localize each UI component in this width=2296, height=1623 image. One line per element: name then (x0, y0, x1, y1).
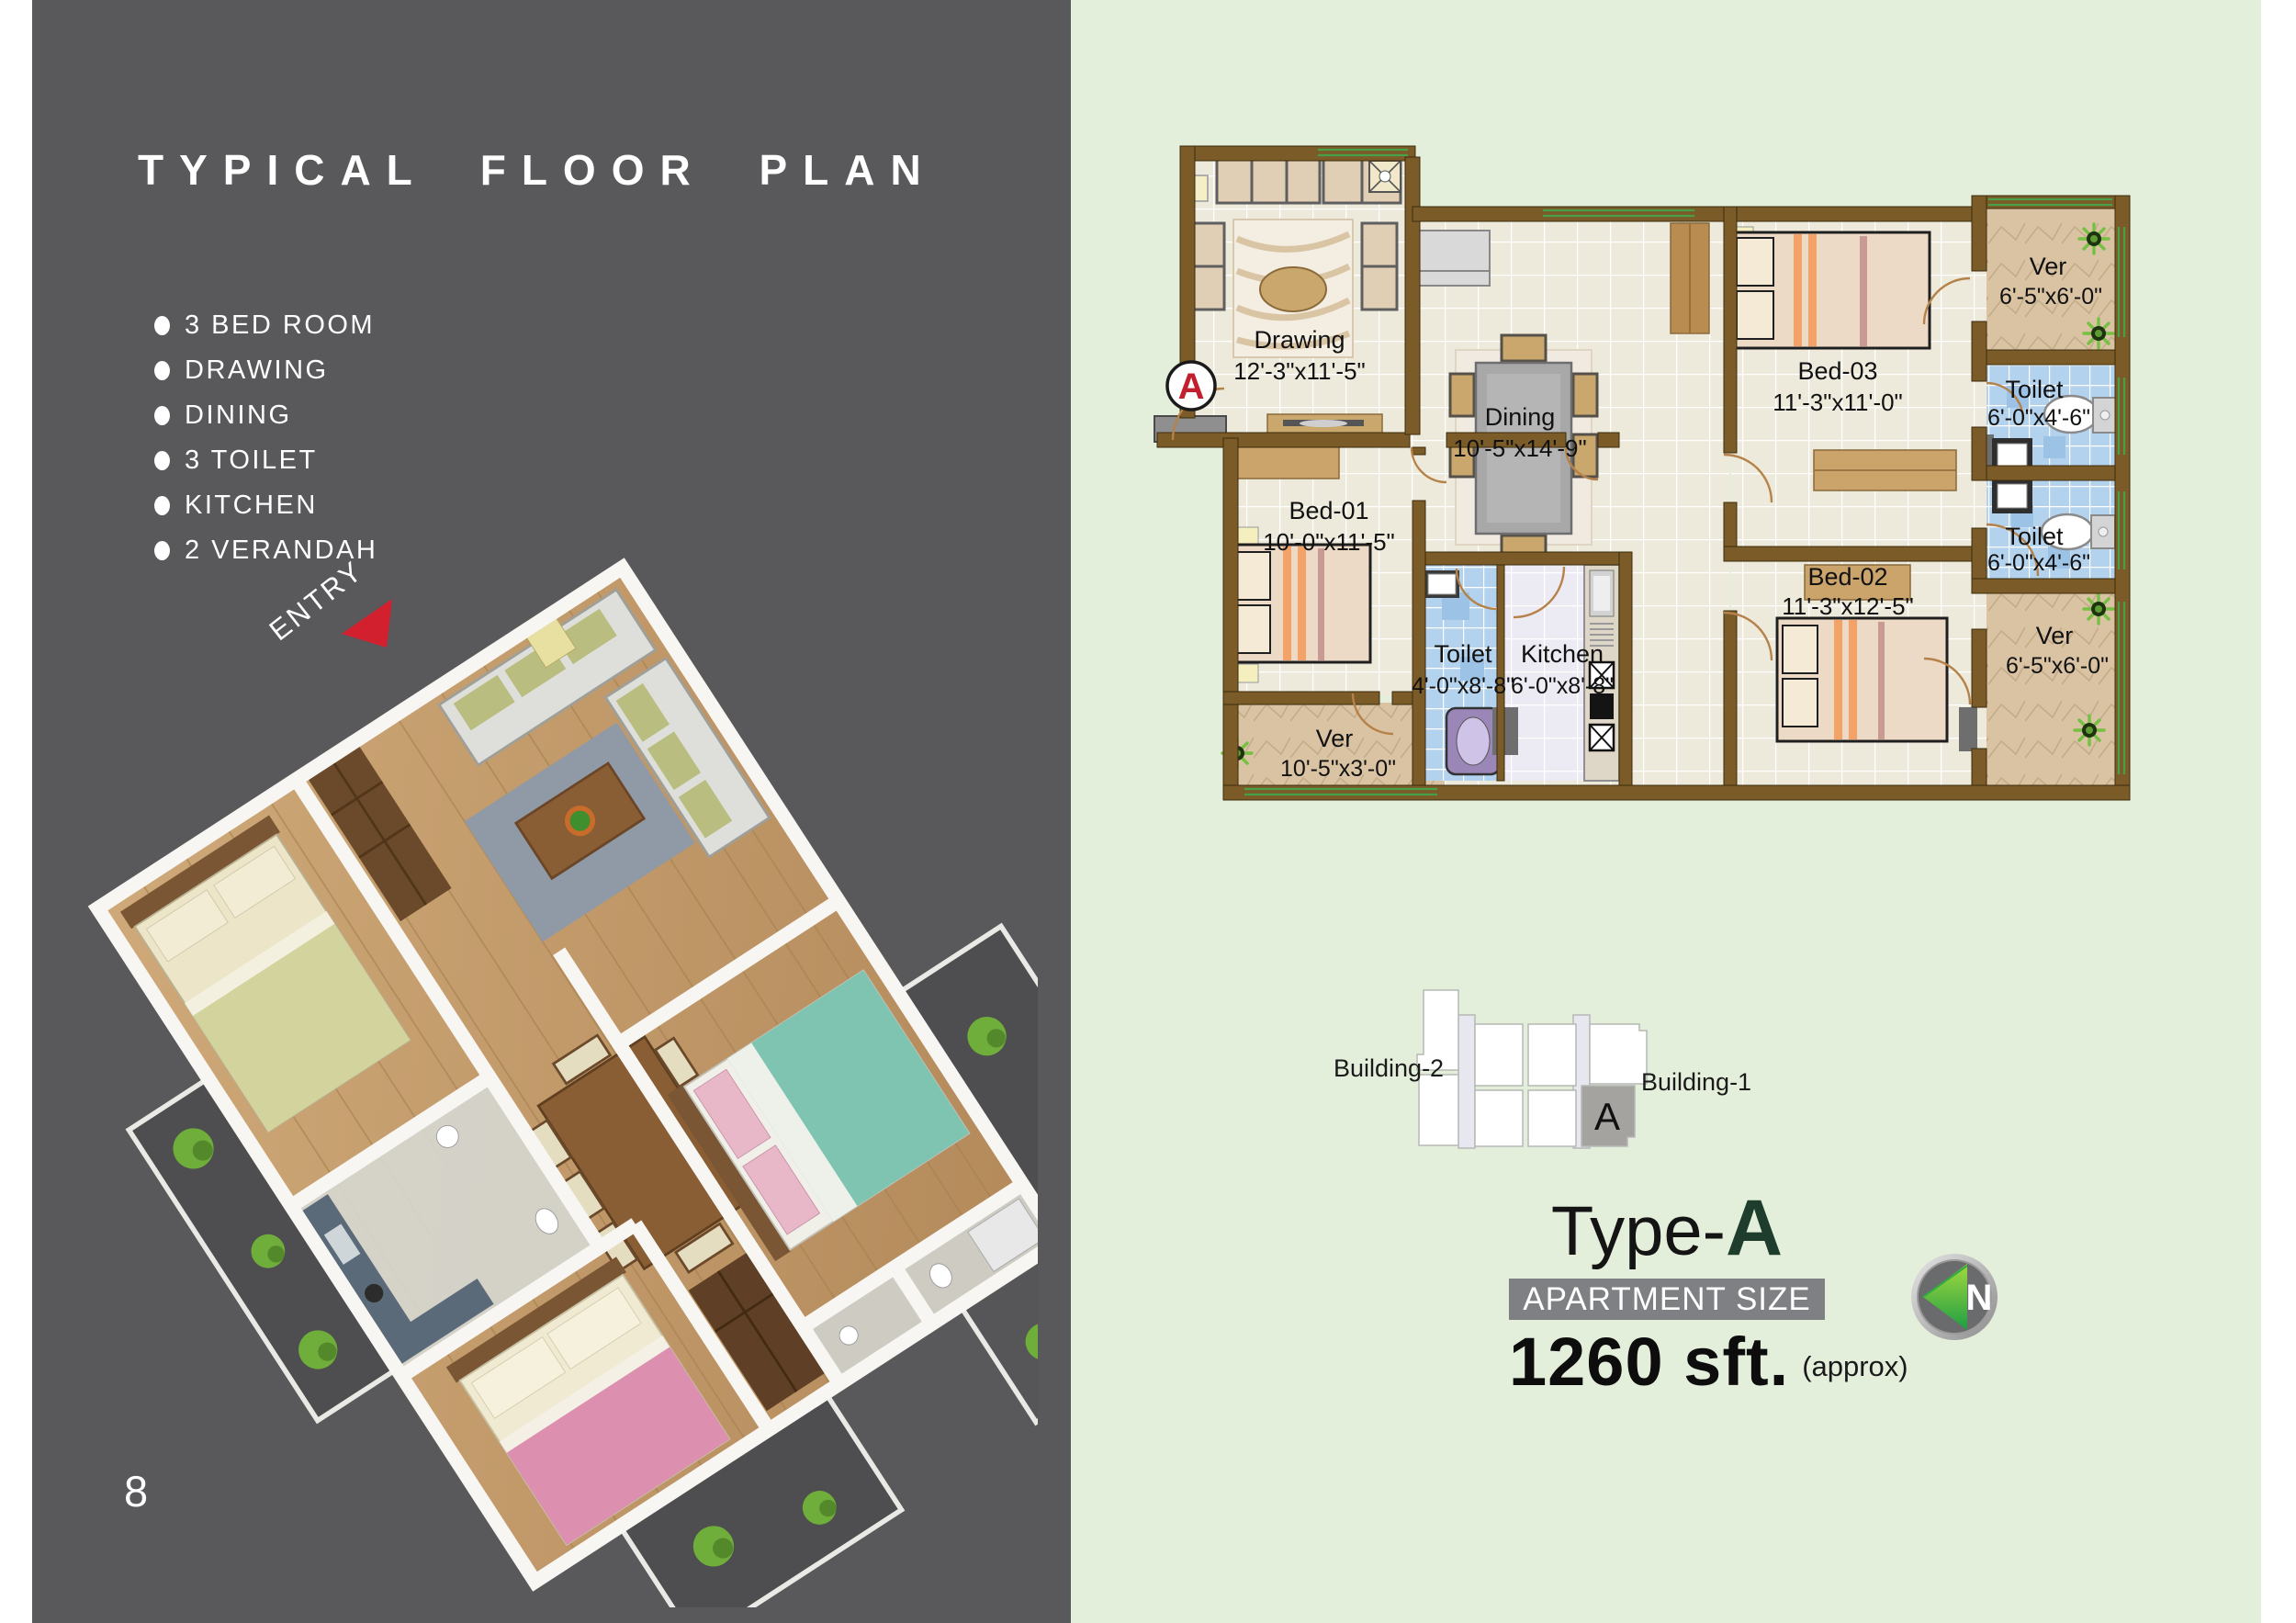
unit-marker-letter: A (1178, 366, 1205, 407)
room-size: 6'-5"x6'-0" (2006, 653, 2109, 679)
room-name: Bed-01 (1289, 497, 1368, 524)
entry-annotation: ENTRY (264, 554, 392, 648)
type-letter: A (1726, 1184, 1783, 1272)
feature-label: 3 BED ROOM (185, 310, 375, 341)
feature-label: KITCHEN (185, 490, 318, 521)
key-plan: A (1414, 983, 1653, 1157)
room-size: 6'-0"x8'-8" (1511, 673, 1614, 699)
room-size: 12'-3"x11'-5" (1233, 357, 1366, 385)
room-name: Toilet (2005, 376, 2064, 403)
feature-item: DINING (154, 393, 377, 438)
left-panel: TYPICAL FLOOR PLAN 3 BED ROOM DRAWING DI… (32, 0, 1071, 1623)
entry-arrow-icon (342, 599, 392, 648)
room-name: Drawing (1254, 326, 1345, 354)
feature-item: 3 BED ROOM (154, 303, 377, 348)
feature-item: 3 TOILET (154, 438, 377, 483)
feature-label: 3 TOILET (185, 445, 318, 476)
floorplan-2d: A Drawing 12'-3"x11'-5" Dining 10'-5"x14… (1153, 142, 2167, 804)
room-name: Kitchen (1521, 640, 1604, 668)
right-panel: A Drawing 12'-3"x11'-5" Dining 10'-5"x14… (1071, 0, 2261, 1623)
north-compass-icon: N (1910, 1253, 1998, 1341)
unit-marker: A (1167, 362, 1215, 410)
compass-n: N (1966, 1278, 1993, 1318)
room-name: Ver (1316, 725, 1354, 752)
room-size: 6'-0"x4'-6" (1987, 405, 2090, 431)
feature-label: DRAWING (185, 355, 329, 386)
page-number: 8 (124, 1466, 148, 1516)
page-title: TYPICAL FLOOR PLAN (138, 145, 937, 195)
room-name: Ver (2030, 253, 2067, 280)
room-size: 11'-3"x11'-0" (1773, 389, 1903, 416)
room-name: Dining (1485, 403, 1556, 431)
room-name: Toilet (2005, 523, 2064, 550)
room-size: 11'-3"x12'-5" (1782, 592, 1914, 620)
feature-item: KITCHEN (154, 483, 377, 528)
key-plan-unit: A (1594, 1095, 1620, 1138)
room-size: 6'-5"x6'-0" (1999, 284, 2102, 310)
building-1-label: Building-1 (1641, 1068, 1751, 1097)
room-size: 10'-5"x3'-0" (1280, 756, 1396, 782)
room-size: 10'-0"x11'-5" (1263, 528, 1395, 556)
room-name: Ver (2036, 622, 2074, 649)
type-prefix: Type- (1551, 1192, 1726, 1270)
feature-label: DINING (185, 400, 292, 431)
bullet-icon (154, 451, 170, 470)
bullet-icon (154, 496, 170, 515)
building-2-label: Building-2 (1334, 1054, 1444, 1083)
feature-item: DRAWING (154, 348, 377, 393)
room-size: 6'-0"x4'-6" (1987, 550, 2090, 576)
apartment-size-line: 1260 sft.(approx) (1509, 1323, 1908, 1401)
room-size: 10'-5"x14'-9" (1453, 434, 1586, 462)
room-name: Toilet (1434, 640, 1492, 668)
apartment-size-value: 1260 sft. (1509, 1324, 1789, 1400)
apartment-size-badge: APARTMENT SIZE (1509, 1279, 1825, 1320)
apartment-size-approx: (approx) (1802, 1350, 1908, 1382)
room-size: 4'-0"x8'-8" (1412, 673, 1514, 699)
type-title: Type-A (1509, 1183, 1825, 1274)
bullet-icon (154, 316, 170, 335)
brochure-page: TYPICAL FLOOR PLAN 3 BED ROOM DRAWING DI… (0, 0, 2296, 1623)
isometric-floorplan: ENTRY (51, 524, 1038, 1607)
room-name: Bed-02 (1807, 563, 1887, 591)
bullet-icon (154, 361, 170, 380)
room-name: Bed-03 (1797, 357, 1877, 385)
bullet-icon (154, 406, 170, 425)
